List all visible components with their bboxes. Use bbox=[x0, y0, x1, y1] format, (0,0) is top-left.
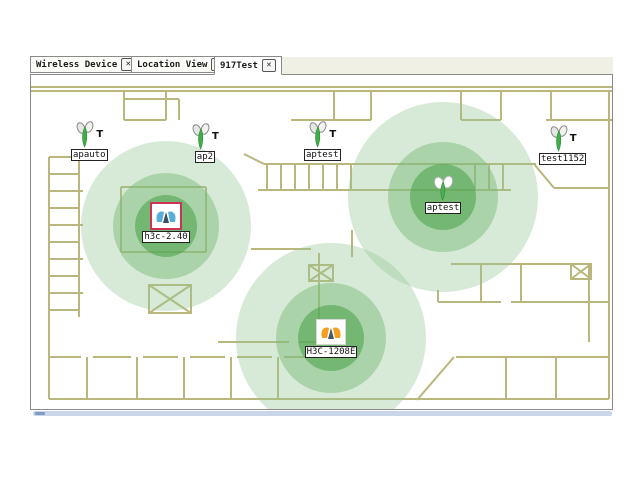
tab-label: 917Test bbox=[220, 61, 258, 71]
horizontal-scrollbar[interactable] bbox=[33, 411, 612, 416]
device-label: apauto bbox=[71, 149, 108, 161]
dual-antenna-orange-icon bbox=[319, 322, 343, 342]
device-mode-letter: T bbox=[96, 129, 103, 140]
device-label: h3c-2.40 bbox=[142, 231, 189, 243]
tab-label: Wireless Device bbox=[36, 60, 117, 70]
device-test1152[interactable]: T test1152 bbox=[539, 124, 586, 165]
tab-bar: Wireless Device ✕ Location View ✕ 917Tes… bbox=[30, 56, 613, 75]
device-mode-letter: T bbox=[212, 131, 219, 142]
tab-917test[interactable]: 917Test ✕ bbox=[214, 56, 282, 75]
antenna-icon bbox=[75, 120, 95, 148]
device-mode-letter: T bbox=[570, 133, 577, 144]
antenna-icon bbox=[191, 122, 211, 150]
device-label: ap2 bbox=[195, 151, 215, 163]
device-apauto[interactable]: T apauto bbox=[71, 120, 108, 161]
device-frame bbox=[316, 319, 346, 345]
device-ap2[interactable]: T ap2 bbox=[191, 122, 219, 163]
tab-bar-filler bbox=[278, 57, 613, 74]
device-aptest-top[interactable]: T aptest bbox=[304, 120, 341, 161]
tab-label: Location View bbox=[137, 60, 207, 70]
device-label: test1152 bbox=[539, 153, 586, 165]
antenna-icon bbox=[308, 120, 328, 148]
selected-device-frame bbox=[150, 202, 182, 230]
device-aptest-coverage[interactable]: aptest bbox=[413, 175, 473, 214]
device-h3c-2-40[interactable]: h3c-2.40 bbox=[136, 202, 196, 243]
dual-antenna-blue-icon bbox=[154, 206, 178, 226]
device-label: aptest bbox=[425, 202, 462, 214]
device-h3c-1208e[interactable]: H3C-1208E bbox=[300, 319, 362, 358]
tab-close-icon[interactable]: ✕ bbox=[262, 59, 276, 72]
floorplan-map-canvas: T apauto T ap2 T aptest bbox=[30, 74, 613, 410]
device-label: aptest bbox=[304, 149, 341, 161]
device-label: H3C-1208E bbox=[305, 346, 358, 358]
tab-wireless-device[interactable]: Wireless Device ✕ bbox=[30, 56, 141, 73]
antenna-icon bbox=[431, 175, 455, 201]
device-mode-letter: T bbox=[329, 129, 336, 140]
scrollbar-thumb[interactable] bbox=[35, 412, 45, 415]
antenna-icon bbox=[549, 124, 569, 152]
